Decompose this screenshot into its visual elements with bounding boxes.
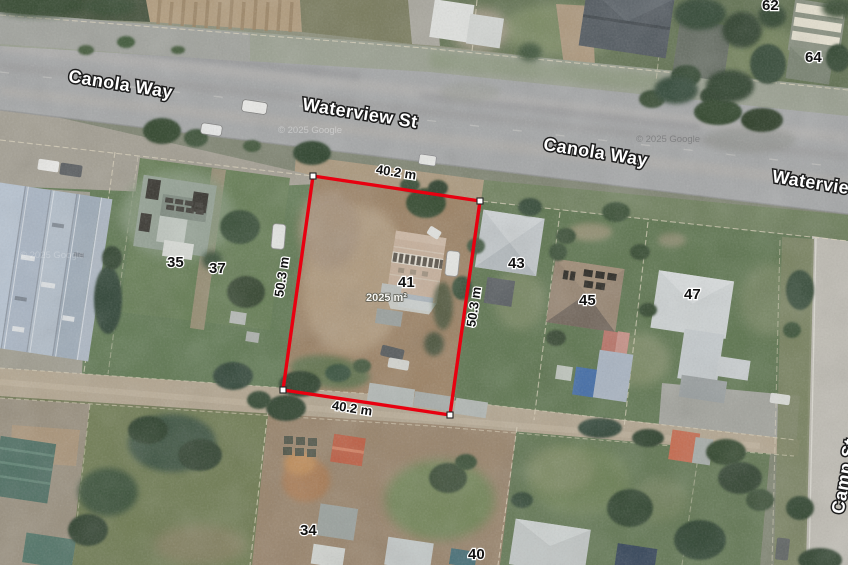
svg-text:40: 40 (468, 546, 485, 563)
svg-text:37: 37 (209, 260, 226, 277)
svg-text:35: 35 (167, 254, 184, 271)
svg-text:64: 64 (805, 49, 822, 66)
svg-text:© 2025 Google: © 2025 Google (636, 134, 700, 145)
svg-text:62: 62 (762, 0, 779, 14)
svg-text:45: 45 (579, 292, 596, 309)
svg-text:34: 34 (300, 522, 317, 539)
svg-text:© 2025 Google: © 2025 Google (20, 250, 84, 261)
svg-text:47: 47 (684, 286, 701, 303)
svg-text:2025 m²: 2025 m² (366, 292, 407, 304)
svg-text:© 2025 Google: © 2025 Google (278, 125, 342, 136)
svg-text:43: 43 (508, 255, 525, 272)
svg-text:41: 41 (398, 274, 415, 291)
